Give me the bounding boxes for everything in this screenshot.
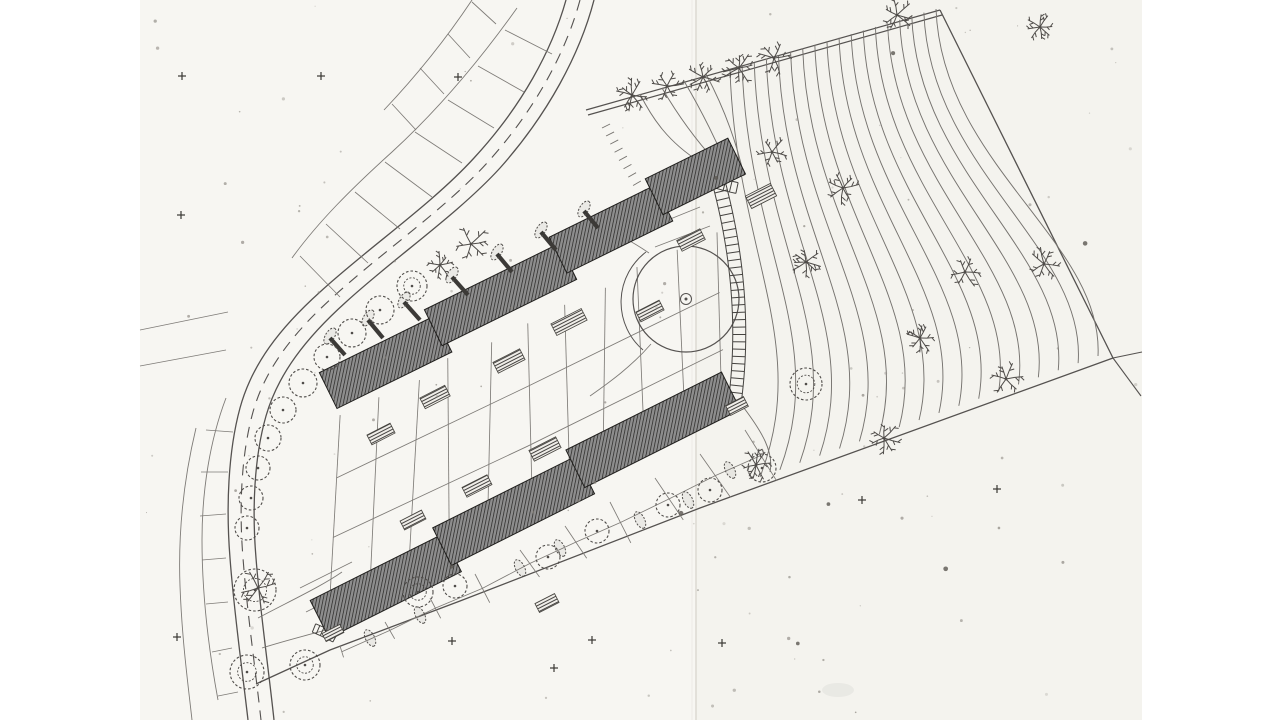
scan-smudge bbox=[822, 683, 854, 697]
site-plan-drawing bbox=[0, 0, 1280, 720]
site-plan-svg bbox=[0, 0, 1280, 720]
scanned-site-plan-page bbox=[0, 0, 1280, 720]
